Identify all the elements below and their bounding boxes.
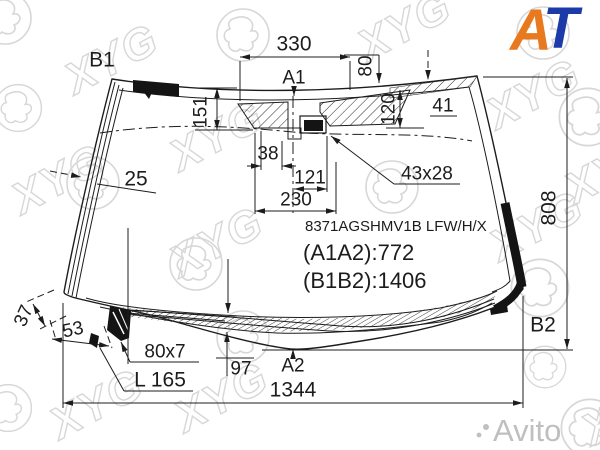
dim-label-38: 38 [257, 144, 278, 165]
avito-watermark-text: Avito [493, 413, 561, 448]
xyg-watermark-text: XYG [571, 365, 600, 450]
dim-43x28: 43x28 [331, 136, 460, 185]
dim-label-l165: L 165 [134, 369, 186, 392]
dim-label-80x7: 80x7 [144, 342, 185, 363]
dim-label-121: 121 [294, 168, 326, 189]
dim-80x7: 80x7 [121, 342, 199, 363]
xyg-watermark-text: XYG [164, 352, 277, 443]
sensor-window-fill [304, 120, 323, 131]
dim-121: 121 [294, 136, 327, 192]
windshield-technical-diagram: XYG XYG XYG XYG XYG XYG XYG XYG XYG XYG … [0, 0, 600, 450]
dim-label-120: 120 [379, 93, 400, 125]
xyg-bird-icon [0, 385, 31, 432]
horizontal-datum-line [100, 126, 472, 141]
marker-label-b2: B2 [530, 314, 556, 337]
dim-label-151: 151 [191, 96, 212, 128]
dim-label-53: 53 [60, 318, 85, 343]
xyg-bird-icon [0, 85, 41, 132]
marker-a1: A1 [282, 68, 305, 97]
at-logo-letter-a: A [508, 0, 552, 63]
dim-label-330: 330 [276, 33, 311, 56]
heater-band-hatch [118, 292, 497, 332]
xyg-bird-icon [217, 9, 269, 61]
dim-label-808: 808 [538, 190, 561, 225]
dim-53: 53 [50, 318, 112, 348]
part-info-block: 8371AGSHMV1B LFW/H/X (A1A2):772 (B1B2):1… [303, 218, 487, 293]
dim-label-1344: 1344 [270, 379, 317, 402]
top-black-band [133, 80, 179, 97]
dimension-a1a2: (A1A2):772 [303, 240, 414, 265]
leader-end-mark [89, 333, 99, 348]
dim-label-80: 80 [356, 55, 377, 76]
dim-37: 37 [10, 290, 66, 330]
avito-logo-dot [477, 433, 482, 438]
dim-label-97: 97 [230, 359, 251, 380]
marker-label-a2: A2 [281, 356, 304, 377]
dim-label-43x28: 43x28 [401, 164, 453, 185]
mirror-mount-tab [288, 128, 301, 139]
dim-label-230: 230 [280, 190, 312, 211]
dim-80: 80 [344, 55, 379, 83]
dim-label-41: 41 [432, 96, 453, 117]
avito-logo-dot [483, 424, 489, 430]
marker-a2: A2 [281, 349, 304, 377]
xyg-bird-icon [524, 346, 566, 388]
dim-label-25: 25 [124, 168, 147, 191]
marker-label-a1: A1 [282, 68, 305, 89]
marker-label-b1: B1 [89, 49, 115, 72]
xyg-watermark-text: XYG [1, 134, 114, 225]
xyg-watermark-text: XYG [479, 181, 592, 272]
at-logo: T A [508, 0, 583, 63]
avito-watermark: Avito [477, 413, 562, 448]
part-number: 8371AGSHMV1B LFW/H/X [305, 218, 487, 235]
xyg-bird-icon [0, 0, 31, 44]
dimension-b1b2: (B1B2):1406 [303, 268, 427, 293]
